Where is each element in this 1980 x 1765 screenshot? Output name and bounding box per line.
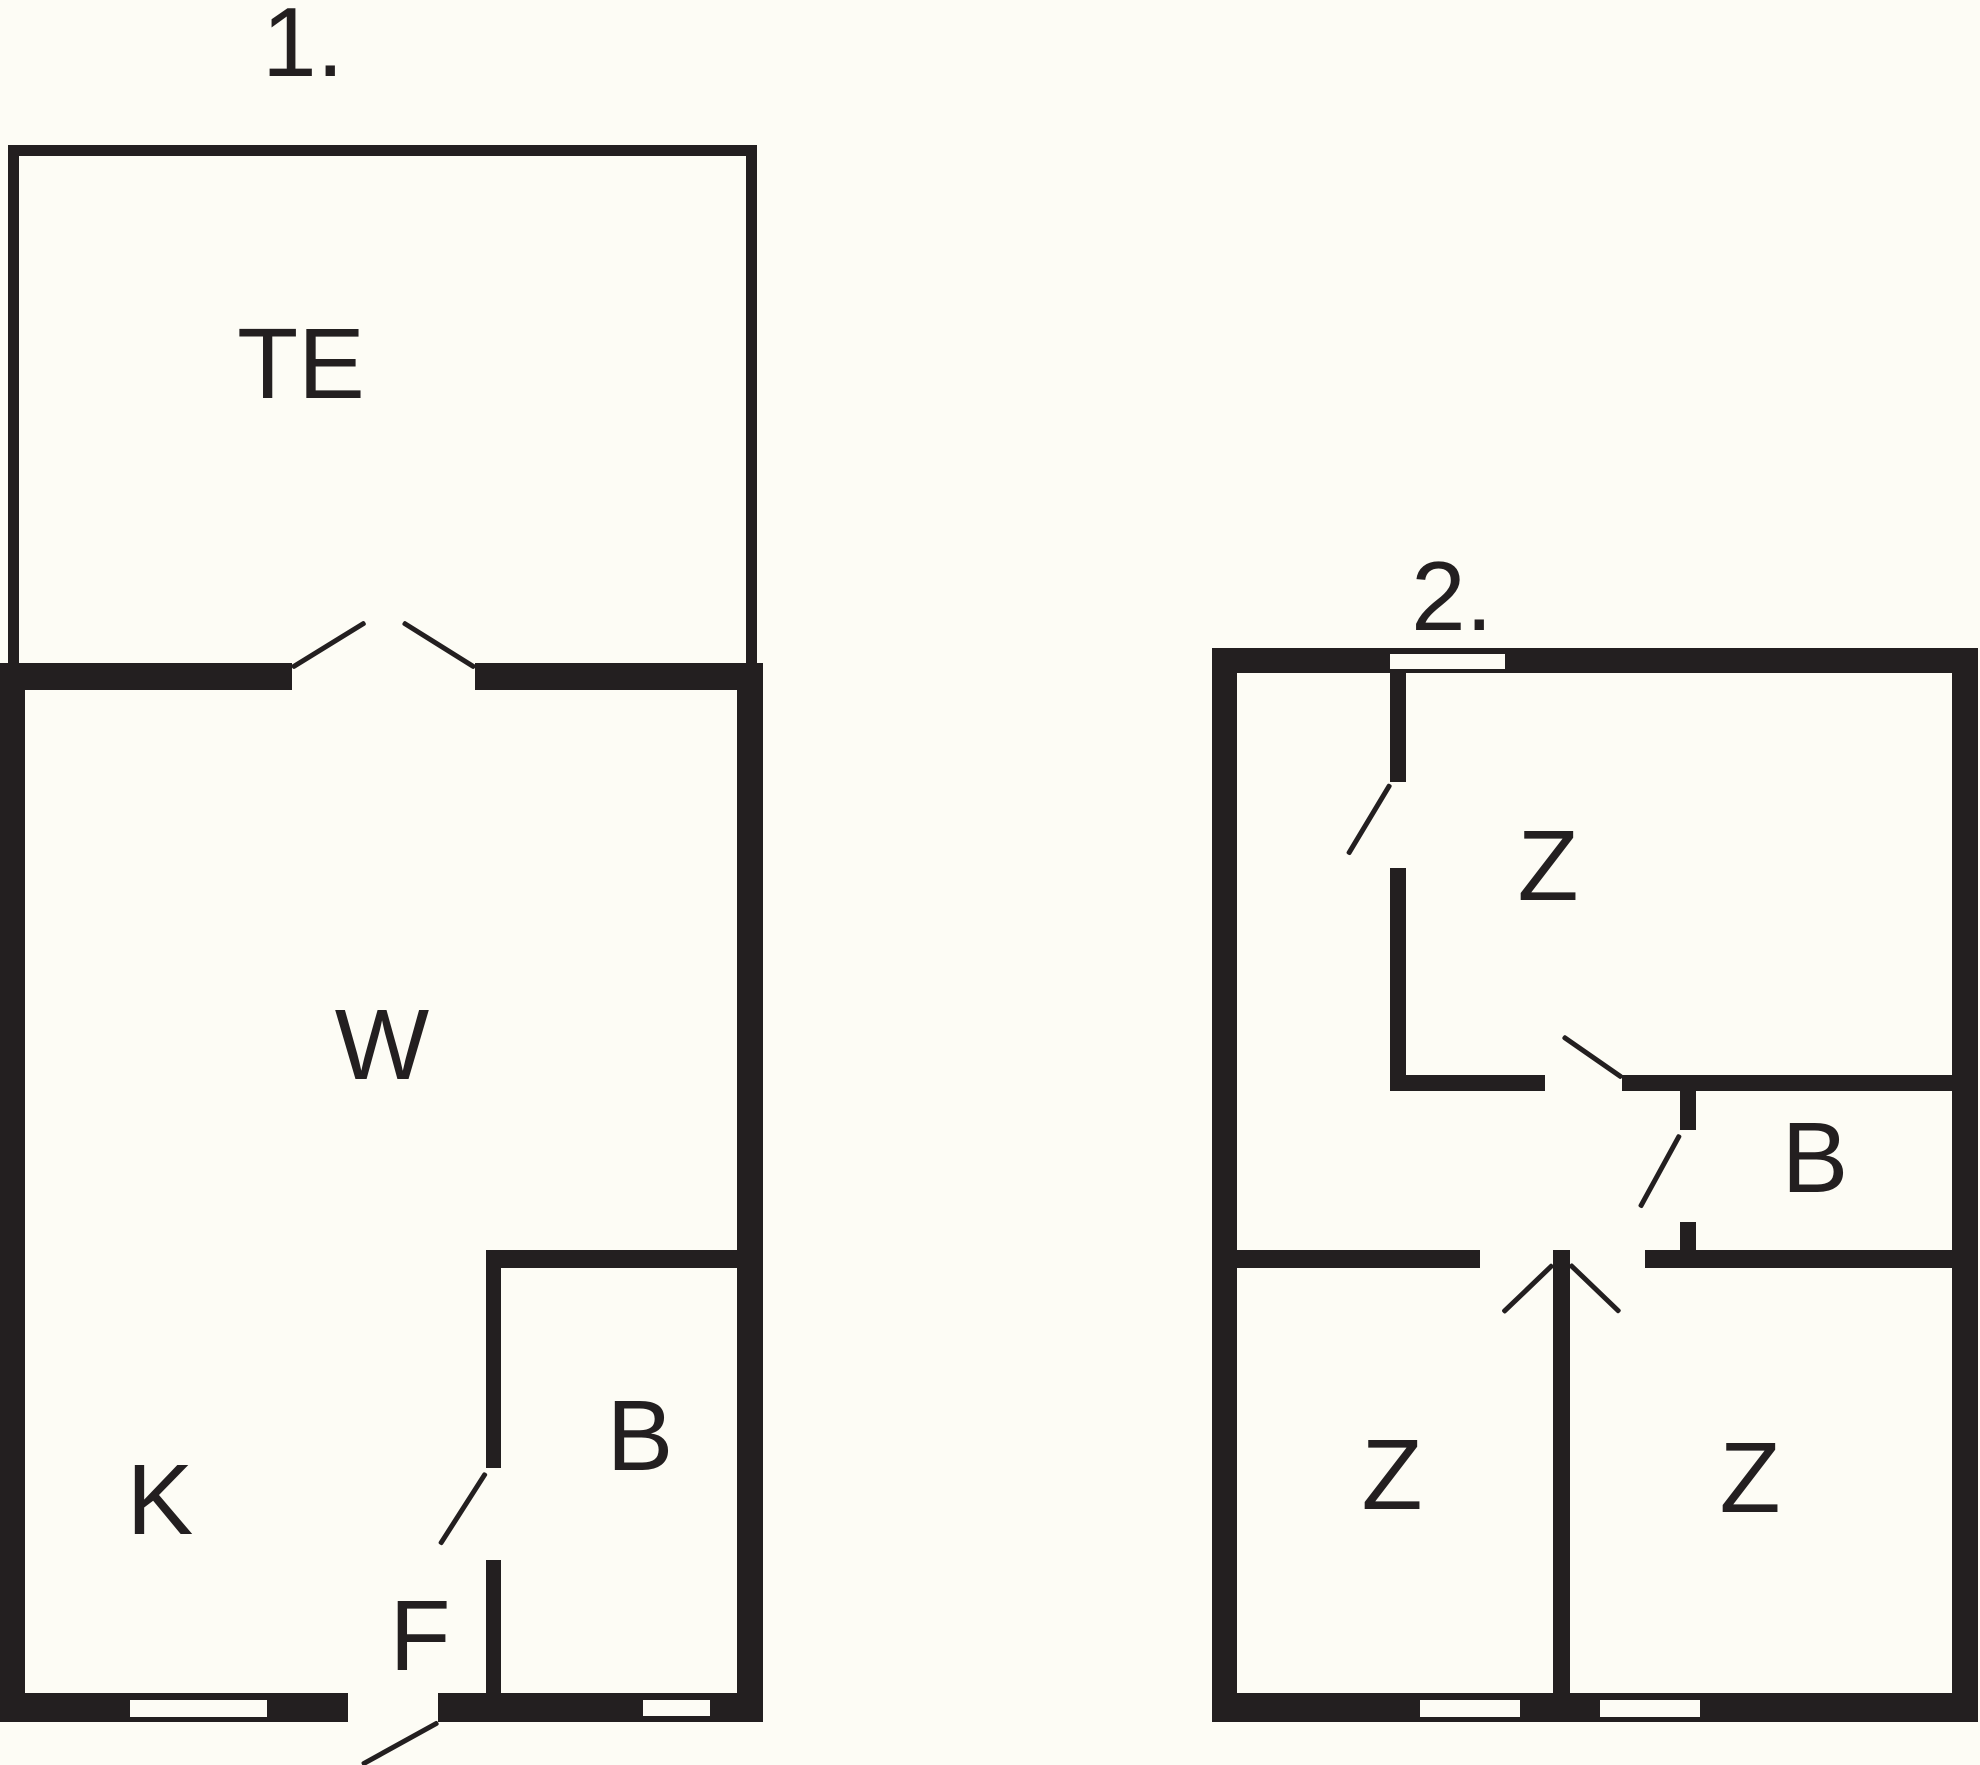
wall-bathroom-2-left-upper <box>1680 1091 1696 1130</box>
wall-te-left <box>8 145 19 663</box>
door-swing-bathroom-1 <box>438 1472 488 1546</box>
wall-bathroom-1-left-lower <box>486 1560 501 1693</box>
door-swing-z-room <box>1562 1034 1624 1079</box>
room-label-z-bottom-right: Z <box>1719 1428 1780 1528</box>
window-bathroom-1 <box>643 1700 710 1716</box>
window-kitchen <box>130 1700 267 1717</box>
window-floor2-top <box>1390 654 1505 669</box>
door-swing-terrace-right <box>402 620 477 669</box>
door-swing-upper-left-room <box>1346 783 1393 856</box>
room-label-bathroom-1: B <box>607 1386 674 1486</box>
room-label-kitchen: K <box>127 1450 194 1550</box>
wall-upper-divider-top-segment <box>1390 673 1406 782</box>
wall-hall-bottom-center-stub <box>1553 1250 1570 1268</box>
wall-main-top-left-segment <box>0 663 292 690</box>
wall-te-right <box>746 145 757 663</box>
wall-z-bottom-left-segment <box>1390 1075 1545 1091</box>
room-label-bathroom-2: B <box>1782 1108 1849 1208</box>
plan-2-number: 2. <box>1411 547 1493 645</box>
window-bedroom-left <box>1420 1700 1520 1717</box>
door-swing-bedroom-right <box>1568 1263 1621 1314</box>
wall-bathroom-2-left-lower <box>1680 1222 1696 1250</box>
floor-plan-drawing: 1. TE W K F B 2. <box>0 0 1980 1765</box>
door-swing-bedroom-left <box>1501 1263 1554 1314</box>
wall-floor2-top <box>1212 648 1978 673</box>
room-label-hall: F <box>389 1586 450 1686</box>
wall-hall-bottom-left-segment <box>1237 1250 1480 1268</box>
room-label-z-top: Z <box>1517 816 1578 916</box>
door-swing-bathroom-2 <box>1638 1133 1682 1208</box>
wall-main-right <box>737 663 763 1722</box>
wall-upper-divider-bottom-segment <box>1390 868 1406 1090</box>
wall-bathroom-1-top <box>486 1250 737 1268</box>
wall-bathroom-1-left-upper <box>486 1250 501 1468</box>
wall-te-top <box>8 145 757 156</box>
room-label-z-bottom-left: Z <box>1361 1425 1422 1525</box>
plan-1-number: 1. <box>262 0 344 91</box>
wall-bedroom-divider <box>1553 1268 1570 1693</box>
room-label-terrace: TE <box>237 314 365 414</box>
wall-floor2-right <box>1952 648 1978 1722</box>
wall-main-left <box>0 663 25 1722</box>
window-bedroom-right <box>1600 1700 1700 1717</box>
wall-hall-bottom-right-segment <box>1645 1250 1952 1268</box>
wall-floor2-bottom <box>1212 1693 1978 1722</box>
wall-z-bottom-right-segment <box>1622 1075 1952 1091</box>
wall-floor2-left <box>1212 648 1237 1722</box>
wall-main-top-right-segment <box>475 663 763 690</box>
wall-main-bottom-right-segment <box>438 1693 763 1722</box>
door-swing-terrace-left <box>291 620 367 669</box>
door-swing-entrance <box>361 1720 440 1765</box>
room-label-living-room: W <box>335 995 429 1095</box>
